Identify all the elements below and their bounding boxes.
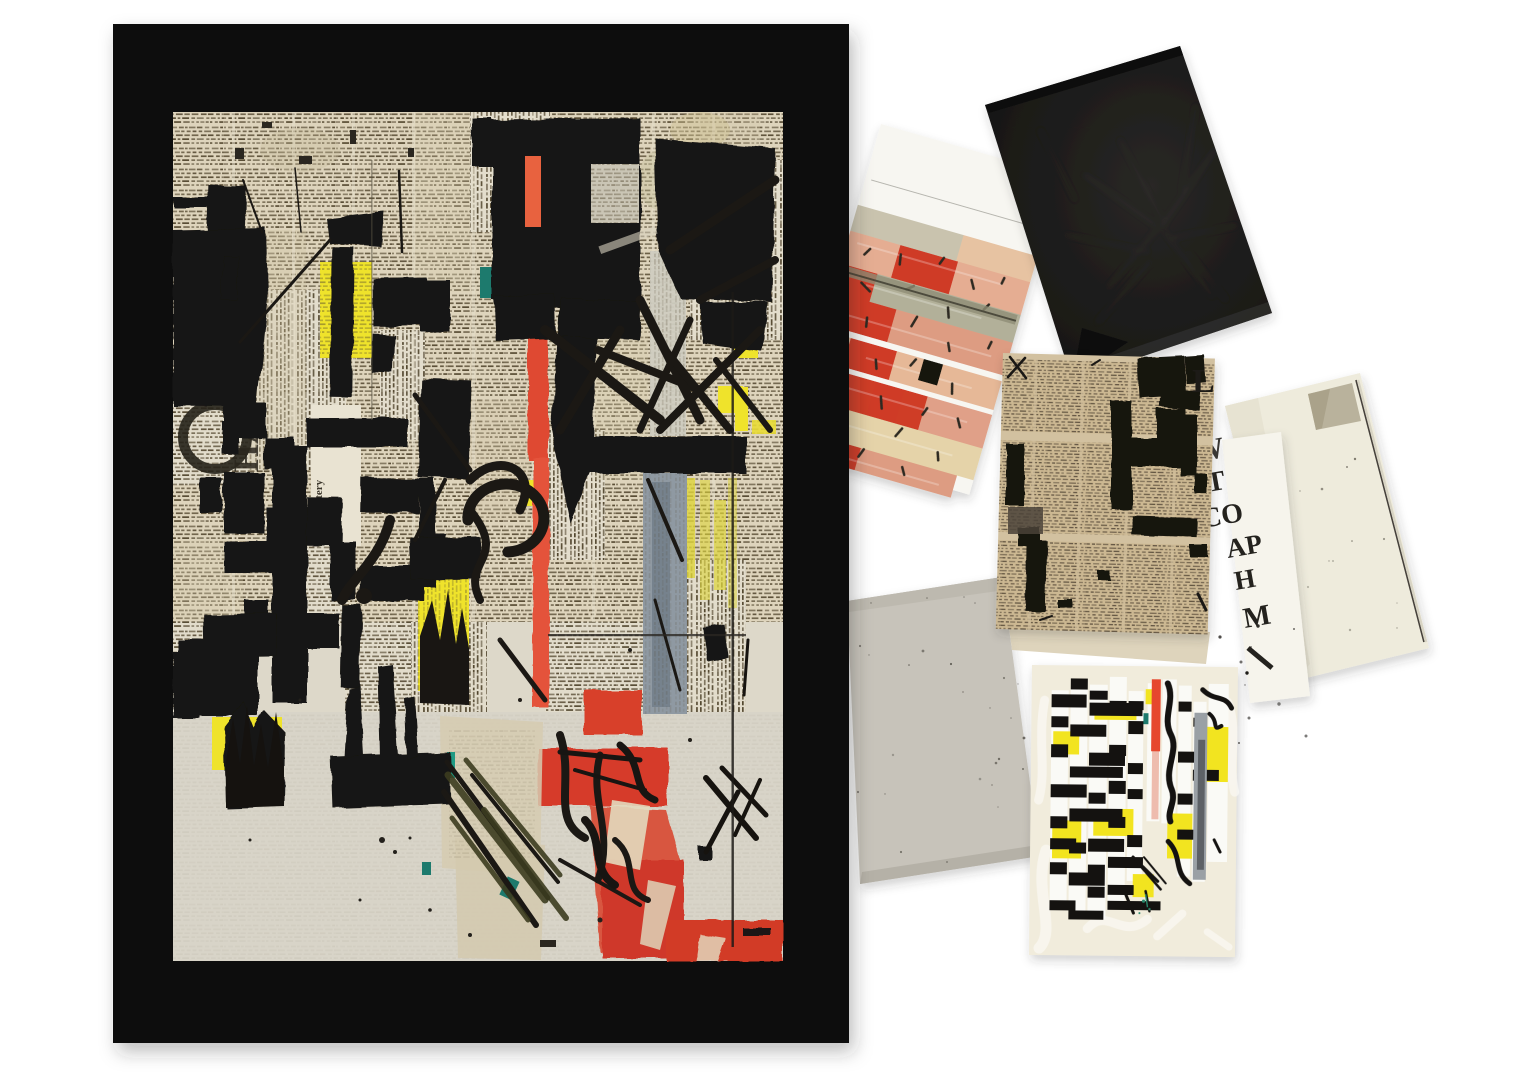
svg-text:AP: AP — [1224, 528, 1265, 564]
svg-text:L: L — [1192, 363, 1215, 400]
svg-text:M: M — [1241, 599, 1274, 635]
